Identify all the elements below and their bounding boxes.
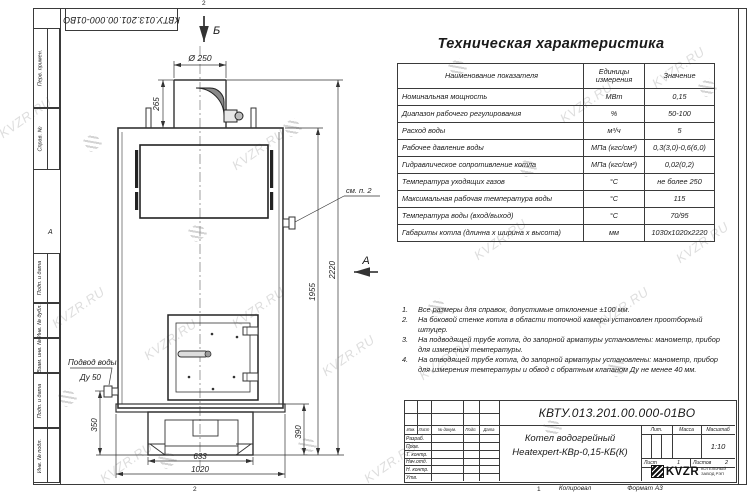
note-item: 1. Все размеры для справок, допустимые о… — [402, 305, 722, 314]
sig-row-tkontr: Т. контр. — [406, 452, 428, 458]
table-row: Максимальная рабочая температура воды °С… — [398, 191, 715, 208]
table-row: Температура воды (вход/выход) °С 70/95 — [398, 208, 715, 225]
spec-unit: °С — [584, 174, 645, 191]
rev-header-data: Дата — [479, 427, 499, 432]
note-item: 3. На подводящей трубе котла, до запорно… — [402, 335, 722, 354]
top-doc-number: КВТУ.013.201.00.000-01ВО — [63, 15, 180, 25]
zone-mark-bottom: 2 — [193, 486, 197, 493]
spec-value: 50-100 — [645, 106, 715, 123]
margin-field-label: Подп. и дата — [37, 261, 43, 295]
kvzr-logo-sub2: ЗАВОД РЭП — [701, 472, 726, 477]
title-block-doc-number: КВТУ.013.201.00.000-01ВО — [499, 401, 735, 425]
sig-row-nachotd: Нач.отд. — [406, 459, 427, 465]
note-number: 2. — [402, 315, 418, 334]
spec-value: не более 250 — [645, 174, 715, 191]
spec-unit: МВт — [584, 89, 645, 106]
scale-label: Масштаб — [701, 427, 735, 433]
margin-field-label: Подп. и дата — [37, 383, 43, 417]
table-row: Рабочее давление воды МПа (кгс/см²) 0,3(… — [398, 140, 715, 157]
spec-unit: % — [584, 106, 645, 123]
rev-header-podp: Подп. — [463, 427, 479, 432]
note-item: 2. На боковой стенке котла в области топ… — [402, 315, 722, 334]
margin-field-podp-data: Подп. и дата — [33, 253, 60, 303]
margin-field-label: Взам. инв. № — [37, 338, 43, 372]
spec-value: 70/95 — [645, 208, 715, 225]
title-block: Изм. Лист № докум. Подп. Дата Разраб. Пр… — [404, 400, 737, 483]
note-text: На боковой стенке котла в области топочн… — [418, 315, 722, 334]
spec-param: Расход воды — [398, 123, 584, 140]
column-header: Значение — [645, 64, 715, 89]
spec-value: 1030х1020х2220 — [645, 225, 715, 242]
sig-row-razrab: Разраб. — [406, 436, 424, 442]
spec-unit: °С — [584, 208, 645, 225]
note-text: На отводящей трубе котла, до запорной ар… — [418, 355, 722, 374]
table-row: Диапазон рабочего регулирования % 50-100 — [398, 106, 715, 123]
sig-row-utv: Утв. — [406, 475, 417, 481]
scale-value: 1:10 — [701, 434, 735, 458]
spec-param: Габариты котла (длинна х ширина х высота… — [398, 225, 584, 242]
table-row: Расход воды м³/ч 5 — [398, 123, 715, 140]
margin-field-inv-podl: Инв. № подл. — [33, 428, 60, 483]
note-number: 1. — [402, 305, 418, 314]
margin-field-label: Справ. № — [37, 127, 43, 152]
column-header: Единицы измерения — [584, 64, 645, 89]
table-row: Номинальная мощность МВт 0,15 — [398, 89, 715, 106]
footer-format: Формат А3 — [612, 485, 678, 492]
product-name-line2: Heatexpert-КВр-0,15-КБ(К) — [512, 446, 627, 460]
note-text: Все размеры для справок, допустимые откл… — [418, 305, 722, 314]
note-text: На подводящей трубе котла, до запорной а… — [418, 335, 722, 354]
mass-label: Масса — [672, 427, 701, 433]
rev-header-docnum: № докум. — [431, 427, 463, 432]
top-doc-number-box: КВТУ.013.201.00.000-01ВО — [65, 8, 178, 31]
table-row: Габариты котла (длинна х ширина х высота… — [398, 225, 715, 242]
kvzr-logo-text: KVZR — [666, 466, 699, 478]
spec-unit: мм — [584, 225, 645, 242]
margin-field-perv-primen: Перв. примен. — [33, 28, 60, 108]
column-header: Наименование показателя — [398, 64, 584, 89]
table-row: Температура уходящих газов °С не более 2… — [398, 174, 715, 191]
spec-param: Температура уходящих газов — [398, 174, 584, 191]
spec-param: Максимальная рабочая температура воды — [398, 191, 584, 208]
margin-field-sprav-no: Справ. № — [33, 108, 60, 170]
note-number: 3. — [402, 335, 418, 354]
zone-mark-top: 2 — [202, 0, 206, 7]
spec-param: Диапазон рабочего регулирования — [398, 106, 584, 123]
kvzr-logo-icon — [651, 465, 664, 478]
table-header-row: Наименование показателя Единицы измерени… — [398, 64, 715, 89]
rev-header-list: Лист — [417, 427, 431, 432]
spec-unit: МПа (кгс/см²) — [584, 157, 645, 174]
spec-value: 5 — [645, 123, 715, 140]
product-name: Котел водогрейный Heatexpert-КВр-0,15-КБ… — [499, 425, 641, 467]
spec-param: Температура воды (вход/выход) — [398, 208, 584, 225]
spec-param: Рабочее давление воды — [398, 140, 584, 157]
margin-field-label: Инв. № дубл. — [37, 304, 43, 338]
table-row: Гидравлическое сопротивление котла МПа (… — [398, 157, 715, 174]
margin-field-label: Перв. примен. — [37, 50, 43, 87]
spec-value: 115 — [645, 191, 715, 208]
zone-mark-bottom-right: 1 — [537, 486, 541, 493]
margin-field-vzam-inv: Взам. инв. № — [33, 338, 60, 373]
footer-copied: Копировал — [545, 485, 605, 492]
spec-value: 0,3(3,0)-0,6(6,0) — [645, 140, 715, 157]
sig-row-prov: Пров. — [406, 444, 419, 450]
sig-row-nkontr: Н. контр. — [406, 467, 429, 473]
drawing-sheet: KVZR.RU KVZR.RU KVZR.RU KVZR.RU KVZR.RU … — [0, 0, 750, 500]
rev-header-izm: Изм. — [405, 427, 417, 432]
margin-field-inv-dubl: Инв. № дубл. — [33, 303, 60, 338]
spec-param: Гидравлическое сопротивление котла — [398, 157, 584, 174]
spec-table-title: Техническая характеристика — [397, 36, 705, 52]
margin-field-podp-data-2: Подп. и дата — [33, 373, 60, 428]
spec-unit: °С — [584, 191, 645, 208]
spec-table: Наименование показателя Единицы измерени… — [397, 63, 715, 242]
spec-value: 0,02(0,2) — [645, 157, 715, 174]
note-number: 4. — [402, 355, 418, 374]
lit-label: Лит. — [641, 427, 672, 433]
product-name-line1: Котел водогрейный — [525, 432, 615, 446]
spec-value: 0,15 — [645, 89, 715, 106]
spec-param: Номинальная мощность — [398, 89, 584, 106]
spec-unit: МПа (кгс/см²) — [584, 140, 645, 157]
spec-unit: м³/ч — [584, 123, 645, 140]
note-item: 4. На отводящей трубе котла, до запорной… — [402, 355, 722, 374]
margin-field-label: Инв. № подл. — [37, 438, 43, 472]
zone-mark-left: А — [48, 229, 53, 236]
kvzr-logo: KVZR КОТЕЛЬНЫЙ ЗАВОД РЭП — [642, 463, 735, 480]
notes-list: 1. Все размеры для справок, допустимые о… — [402, 305, 722, 375]
